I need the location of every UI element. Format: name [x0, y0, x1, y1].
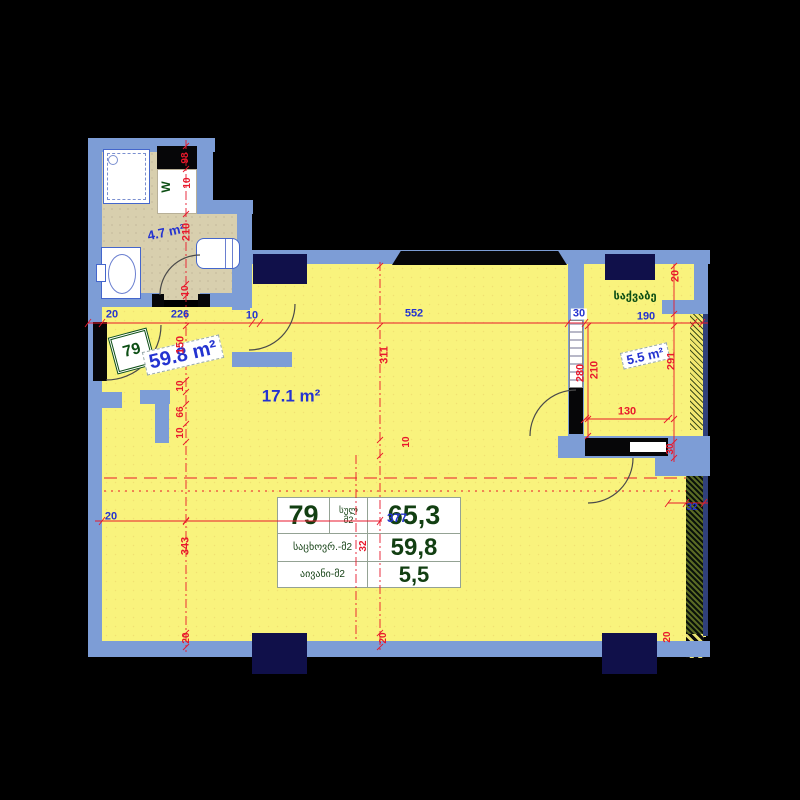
- dim-20-bottom-right: 20: [663, 631, 673, 642]
- dim-66: 66: [176, 406, 186, 417]
- floor-plan: 79 სულ მ2 65,3 საცხოვრ.-მ2 59,8 აივანი-მ…: [0, 0, 800, 800]
- dim-190: 190: [637, 312, 655, 323]
- dim-311: 311: [380, 346, 391, 364]
- dim-343: 343: [181, 537, 192, 555]
- dim-280: 280: [576, 364, 587, 382]
- annotation-layer: 20226105523019020323774.7 m²17.1 m²59.8 …: [0, 0, 800, 800]
- washer-label: W: [160, 181, 172, 192]
- dim-10-bath-b: 10: [181, 285, 191, 296]
- dim-130: 130: [618, 407, 636, 418]
- dim-210-boiler: 210: [590, 361, 601, 379]
- dim-10-top: 10: [246, 311, 258, 322]
- dim-150: 150: [176, 336, 187, 354]
- dim-98-vent: 98: [181, 152, 191, 163]
- area-room: 17.1 m²: [262, 388, 321, 405]
- dim-226: 226: [171, 310, 189, 321]
- dim-291: 291: [667, 352, 678, 370]
- dim-32-right: 32: [686, 503, 697, 513]
- dim-20-top-right: 20: [671, 270, 682, 282]
- dim-210-bath: 210: [182, 223, 193, 241]
- dim-10-bath-a: 10: [183, 177, 193, 188]
- dim-32-overlap: 32: [359, 540, 369, 551]
- dim-552: 552: [405, 309, 423, 320]
- dim-20-mid-left: 20: [105, 512, 117, 523]
- dim-10-hall-a: 10: [176, 380, 186, 391]
- dim-20-bottom-left: 20: [182, 632, 192, 643]
- dim-30-top: 30: [571, 309, 587, 320]
- dim-20-bottom-mid: 20: [379, 632, 389, 643]
- dim-20-top-left: 20: [106, 310, 118, 321]
- dim-30-right: 30: [666, 443, 676, 454]
- boiler-room-label: საქვაბე: [613, 292, 656, 303]
- dim-10-room: 10: [402, 436, 412, 447]
- dim-10-hall-b: 10: [176, 427, 186, 438]
- dim-377-overlap: 377: [387, 512, 407, 524]
- area-boiler: 5.5 m²: [620, 342, 670, 369]
